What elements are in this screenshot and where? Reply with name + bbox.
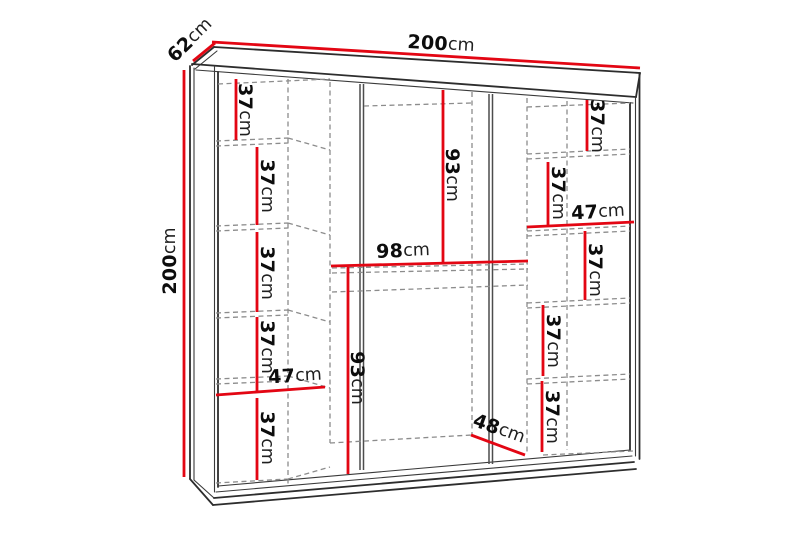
dim-label-middle-lower-height: 93cm (346, 351, 368, 405)
dim-label-middle-bottom-depth: 48cm (470, 409, 528, 448)
dim-label-left-shelf-1: 37cm (234, 83, 256, 137)
dim-label-right-shelf-2: 37cm (547, 166, 569, 220)
dim-label-right-column-width: 47cm (571, 200, 626, 225)
interior-ceiling-line (196, 70, 633, 103)
wardrobe-diagram-canvas: 200cm 62cm 200cm 37cm 37cm 37cm 37cm 37c… (0, 0, 800, 533)
hidden-vertical-dividers (288, 79, 567, 484)
sliding-door-edges (360, 84, 493, 470)
dimension-labels: 200cm 62cm 200cm 37cm 37cm 37cm 37cm 37c… (159, 13, 625, 464)
door-divider-right-edge (489, 94, 493, 464)
dim-label-left-column-width: 47cm (268, 364, 323, 389)
dim-label-left-shelf-3: 37cm (256, 246, 278, 300)
dim-label-overall-depth: 62cm (163, 13, 217, 66)
dim-label-left-shelf-2: 37cm (256, 159, 278, 213)
dim-label-right-shelf-4: 37cm (542, 314, 564, 368)
dim-label-right-shelf-3: 37cm (584, 243, 606, 297)
dim-label-middle-upper-height: 93cm (441, 148, 463, 202)
door-divider-left-edge (360, 84, 364, 470)
dim-label-left-shelf-5: 37cm (256, 411, 278, 465)
dim-label-overall-height: 200cm (159, 227, 181, 294)
hidden-back-ceiling-edges (218, 79, 630, 107)
dim-label-middle-shelf-width: 98cm (376, 239, 430, 263)
dim-label-right-shelf-1: 37cm (586, 99, 608, 153)
wardrobe-dimension-diagram: 200cm 62cm 200cm 37cm 37cm 37cm 37cm 37c… (0, 0, 800, 533)
bottom-left-corner-edge (190, 479, 213, 505)
dim-label-right-shelf-5: 37cm (541, 390, 563, 444)
dim-label-overall-width: 200cm (407, 31, 475, 57)
